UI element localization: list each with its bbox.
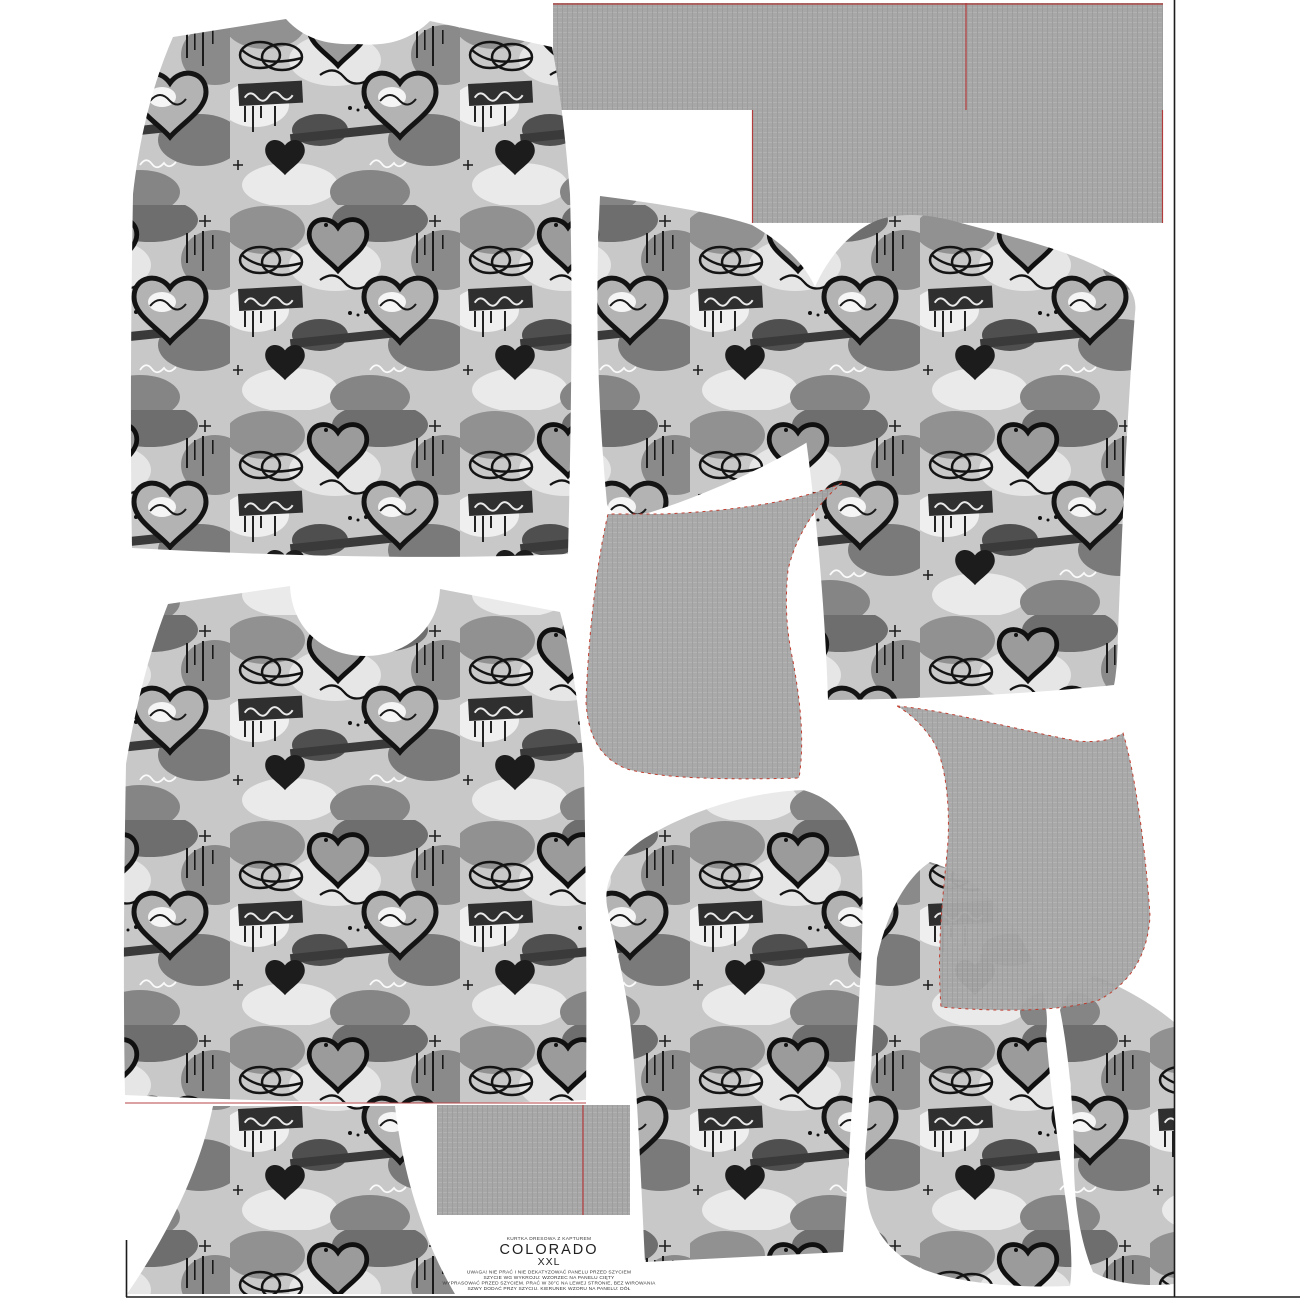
label-block: KURTKA DRESOWA Z KAPTUREM COLORADO XXL U…	[442, 1236, 656, 1292]
bodice-partial-bottom-piece	[127, 1106, 455, 1294]
care-line-1: UWAGA! NIE PRAĆ I NIE DEKATYZOWAĆ PANELU…	[467, 1269, 631, 1276]
fabric-panel: KURTKA DRESOWA Z KAPTUREM COLORADO XXL U…	[0, 0, 1300, 1300]
front-bodice-piece	[124, 586, 586, 1103]
sleeve-upper-left-piece	[597, 196, 825, 516]
care-line-4: SZWY DODAĆ PRZY SZYCIU. KIERUNEK WZORU N…	[467, 1285, 630, 1292]
band-bottom	[437, 1105, 630, 1215]
care-line-2: SZYCIE WG WYKROJU: WZORZEC NA PANELU CIĘ…	[484, 1275, 616, 1281]
care-line-3: WYPRASOWAĆ PRZED SZYCIEM. PRAĆ W 30°C NA…	[442, 1280, 656, 1287]
sleeve-lower-middle-piece	[606, 790, 862, 1262]
band-top-lower	[752, 110, 1163, 223]
size-label: XXL	[538, 1256, 561, 1268]
edge-partial-right-piece	[1060, 976, 1174, 1285]
panel-canvas: KURTKA DRESOWA Z KAPTUREM COLORADO XXL U…	[0, 0, 1300, 1300]
band-top-wide	[553, 3, 1163, 110]
sleeve-upper-right-piece	[795, 215, 1135, 700]
back-bodice-piece	[131, 19, 572, 557]
hood-left-piece	[586, 483, 842, 779]
